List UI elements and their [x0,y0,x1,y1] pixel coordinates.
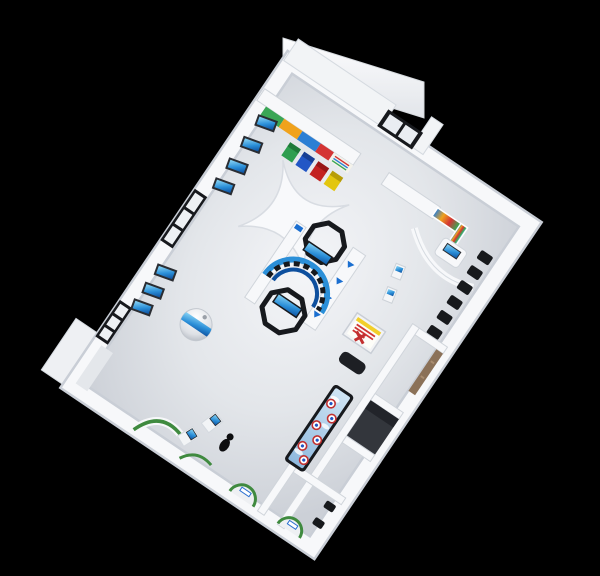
scene-canvas [0,0,600,576]
building [41,15,549,551]
floorplan-render [0,0,600,576]
